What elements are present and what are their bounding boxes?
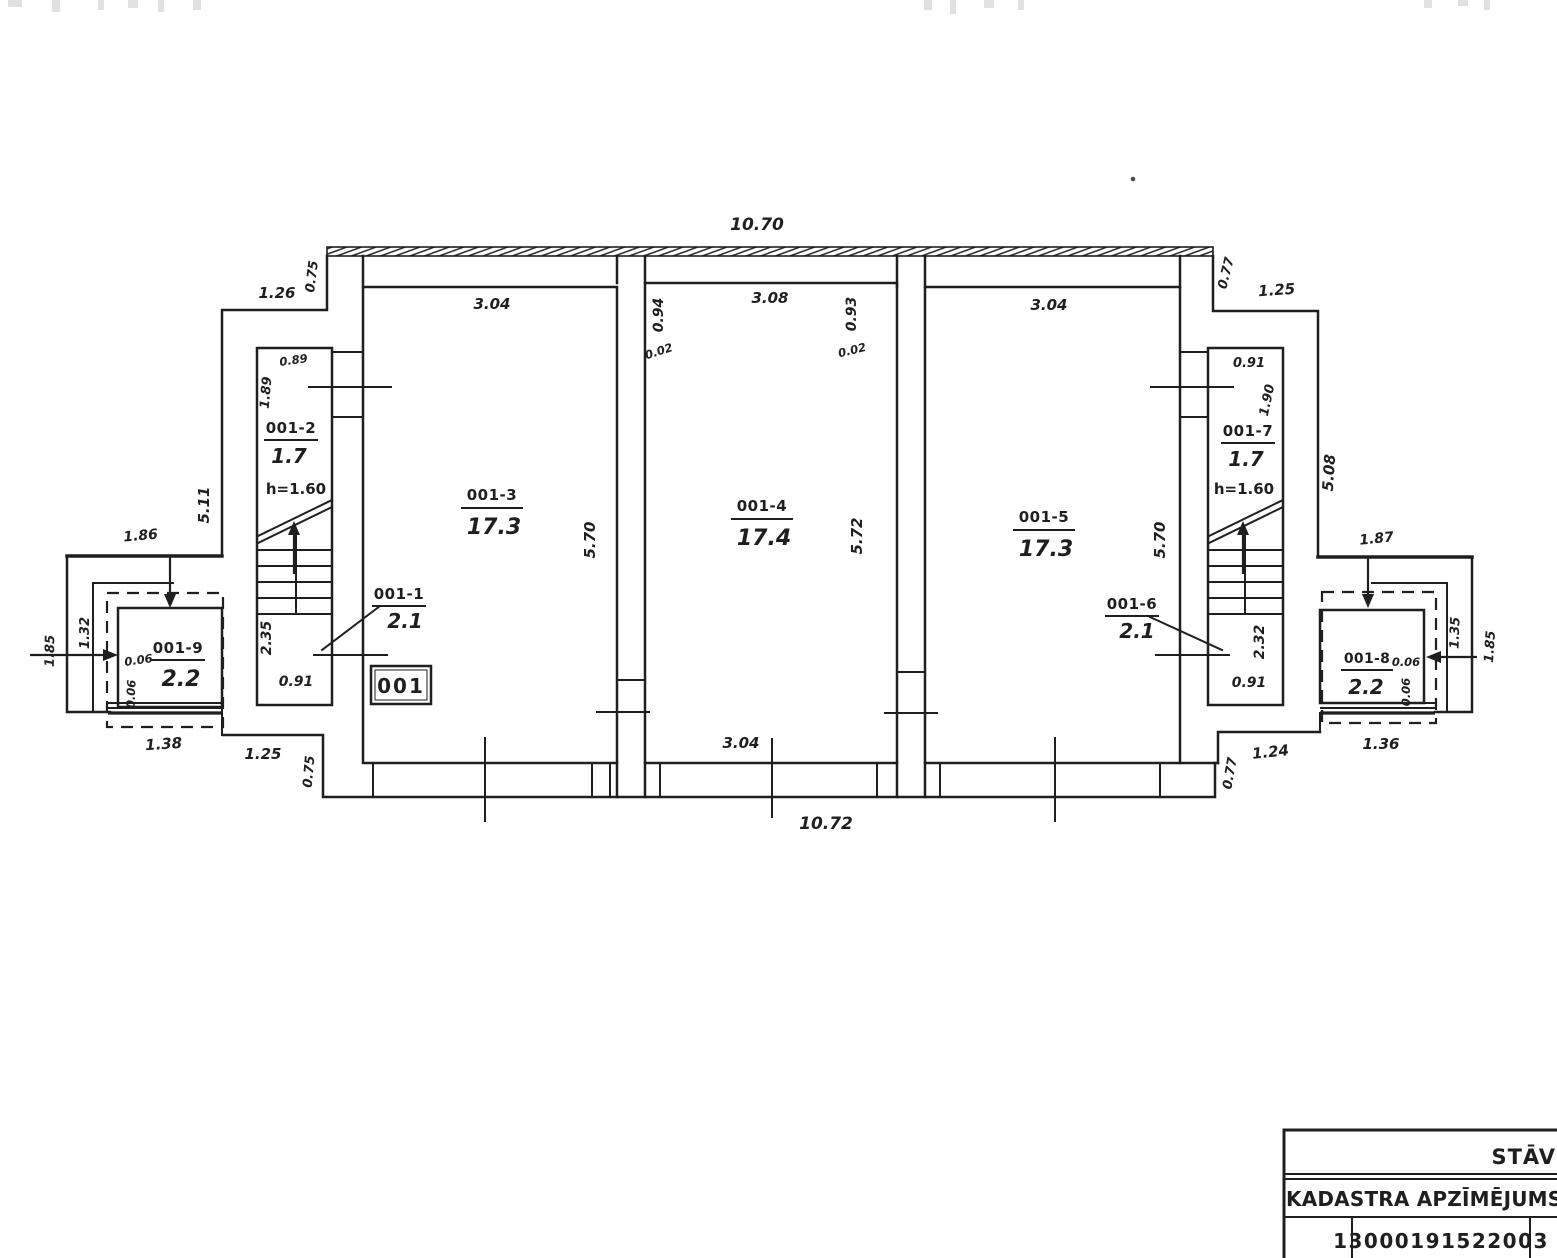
leader-lines (322, 606, 1222, 650)
scanned-floor-plan-page: 001 001-2 1.7 h=1.60 001-7 1.7 h=1.60 00… (0, 0, 1557, 1258)
dim-left-porch-inner: 1.32 (78, 617, 93, 649)
entry-arrow-right-horizontal (1426, 651, 1477, 663)
title-block-cadastre-label: KADASTRA APZĪMĒJUMS (1286, 1187, 1557, 1211)
dim-top-right-offset: 1.25 (1258, 280, 1296, 301)
dim-bottom-total: 10.72 (799, 814, 853, 834)
title-block: STĀV KADASTRA APZĪMĒJUMS 13000191522003 (1284, 1130, 1557, 1258)
room-001-7-area: 1.7 (1228, 447, 1264, 471)
top-exterior-wall (327, 247, 1213, 256)
dim-bottom-left-offset: 1.25 (244, 745, 281, 763)
dim-left-porch-top: 1.86 (123, 527, 159, 546)
dim-bottom-left-step: 0.75 (301, 755, 319, 788)
dim-right-porch-top: 1.87 (1359, 529, 1395, 549)
room-001-6-id: 001-6 (1107, 595, 1157, 613)
dim-r3-top: 3.04 (473, 295, 510, 313)
unit-number-label: 001 (377, 674, 425, 698)
dim-right-side: 5.08 (1319, 454, 1340, 492)
bottom-wall-openings (373, 737, 1160, 822)
dim-left-landing-side: 2.35 (259, 620, 275, 655)
dim-top-left-step: 0.75 (303, 260, 322, 294)
room-001-9-area: 2.2 (162, 667, 201, 692)
stray-ink-dot (1131, 177, 1136, 182)
dim-r4-top: 3.08 (751, 289, 788, 307)
room-001-3-area: 17.3 (467, 515, 521, 540)
room-001-7-id: 001-7 (1223, 422, 1273, 440)
room-001-8-id: 001-8 (1344, 651, 1390, 667)
room-001-3-id: 001-3 (467, 486, 517, 504)
title-block-cadastre-number: 13000191522003 (1333, 1229, 1549, 1253)
dim-bottom-right-offset: 1.24 (1251, 741, 1290, 763)
dim-right-porch-bottom: 1.36 (1362, 735, 1399, 753)
floor-plan-drawing: 001 001-2 1.7 h=1.60 001-7 1.7 h=1.60 00… (0, 0, 1557, 1258)
scan-artifacts (8, 0, 1490, 181)
dim-left-side: 5.11 (195, 486, 213, 523)
dim-right-porch-inner: 1.35 (1447, 617, 1463, 650)
room-001-9-id: 001-9 (153, 639, 203, 657)
room-001-5-area: 17.3 (1019, 537, 1073, 562)
unit-number-box: 001 (371, 666, 431, 704)
dim-r5-side: 5.70 (1151, 521, 1169, 558)
dim-right-landing-side: 2.32 (1252, 625, 1268, 660)
dim-right-stair-top: 0.91 (1233, 356, 1265, 371)
dim-top-total: 10.70 (730, 215, 784, 235)
dim-left-porch-outer: 1.85 (43, 635, 59, 667)
room-001-4-id: 001-4 (737, 497, 787, 515)
dim-right-landing-bottom: 0.91 (1232, 675, 1267, 691)
dim-right-thk-a: 0.06 (1392, 655, 1420, 669)
room-001-7-height-note: h=1.60 (1214, 480, 1274, 498)
dim-r4-bottom: 3.04 (722, 734, 759, 752)
dim-bottom-right-step: 0.77 (1220, 755, 1241, 790)
dim-r4-gap-right: 0.02 (837, 340, 868, 360)
dim-left-landing-bottom: 0.91 (279, 674, 314, 690)
dim-r4-jamb-right: 0.93 (844, 297, 860, 332)
dim-left-thk-a: 0.06 (123, 651, 153, 669)
dim-r5-top: 3.04 (1030, 296, 1067, 314)
room-001-1-area: 2.1 (387, 609, 422, 633)
room-001-5-id: 001-5 (1019, 508, 1069, 526)
dim-r4-side: 5.72 (848, 517, 866, 554)
dim-left-stair-side: 1.89 (258, 376, 276, 409)
room-001-1-id: 001-1 (374, 585, 424, 603)
dim-right-thk-b: 0.06 (1399, 678, 1413, 706)
room-001-2-area: 1.7 (271, 444, 307, 468)
dimension-labels: 10.70 1.26 0.75 0.77 1.25 3.04 0.94 0.02… (43, 215, 1499, 834)
room-001-4-area: 17.4 (737, 526, 791, 551)
dim-r4-gap-left: 0.02 (643, 340, 674, 362)
dim-top-left-offset: 1.26 (258, 284, 295, 302)
dim-left-porch-bottom: 1.38 (145, 734, 183, 755)
room-001-6-area: 2.1 (1119, 619, 1154, 643)
dim-r3-side: 5.70 (581, 521, 599, 558)
room-001-8-area: 2.2 (1348, 675, 1383, 699)
dim-left-thk-b: 0.06 (124, 679, 139, 708)
title-block-plan-title: STĀV (1491, 1144, 1556, 1169)
room-001-2-id: 001-2 (266, 419, 316, 437)
dim-r4-jamb-left: 0.94 (651, 298, 667, 333)
dim-right-stair-side: 1.90 (1257, 383, 1278, 417)
dim-right-porch-outer: 1.85 (1482, 630, 1499, 663)
room-labels: 001-2 1.7 h=1.60 001-7 1.7 h=1.60 001-3 … (152, 419, 1392, 699)
left-stairwell (257, 348, 392, 705)
exterior-walls (67, 247, 1472, 797)
dim-left-stair-top: 0.89 (278, 351, 308, 369)
room-001-2-height-note: h=1.60 (266, 480, 326, 498)
dim-top-right-step: 0.77 (1215, 255, 1238, 291)
